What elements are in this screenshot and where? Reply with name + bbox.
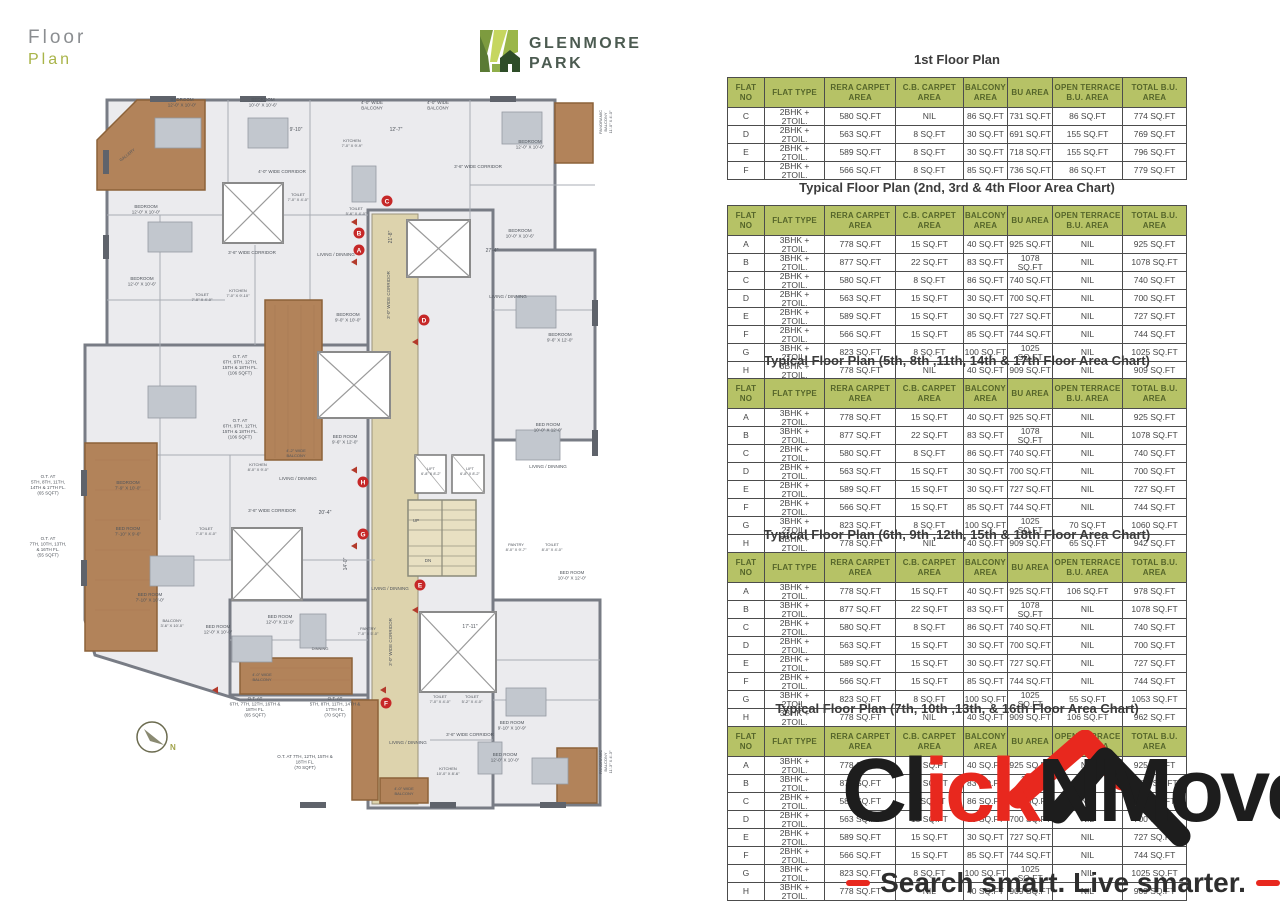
table-cell: 8 SQ.FT	[896, 126, 963, 144]
glenmore-park-logo-icon	[478, 28, 520, 79]
table-cell: B	[728, 427, 765, 445]
table-cell: 2BHK + 2TOIL.	[764, 144, 824, 162]
table-cell: E	[728, 308, 765, 326]
table-cell: 2BHK + 2TOIL.	[764, 463, 824, 481]
table-header-cell: BU AREA	[1008, 206, 1053, 236]
table-cell: NIL	[1053, 463, 1123, 481]
floor-table-section: Typical Floor Plan (2nd, 3rd & 4th Floor…	[727, 178, 1187, 380]
plan-label: BED ROOM10'-0" X 12'-0"	[558, 570, 587, 581]
plan-label: 3'-6" WIDE CORRIDOR	[228, 250, 276, 255]
table-cell: C	[728, 108, 765, 126]
table-cell: 30 SQ.FT	[963, 290, 1008, 308]
table-cell: 563 SQ.FT	[825, 290, 896, 308]
plan-label: KITCHEN8'-0" X 9'-0"	[248, 462, 269, 472]
table-cell: NIL	[1053, 326, 1123, 344]
table-cell: 30 SQ.FT	[963, 463, 1008, 481]
table-cell: 877 SQ.FT	[825, 427, 896, 445]
table-cell: A	[728, 757, 765, 775]
table-cell: F	[728, 326, 765, 344]
plan-label: LIVING / DINNING	[489, 294, 527, 299]
table-cell: 8 SQ.FT	[896, 272, 963, 290]
table-cell: 22 SQ.FT	[896, 427, 963, 445]
table-cell: NIL	[1053, 308, 1123, 326]
table-cell: 30 SQ.FT	[963, 126, 1008, 144]
plan-label: UP	[413, 518, 419, 523]
table-cell: F	[728, 499, 765, 517]
table-cell: C	[728, 793, 765, 811]
table-row: E2BHK + 2TOIL.589 SQ.FT15 SQ.FT30 SQ.FT7…	[728, 308, 1187, 326]
table-header-cell: FLAT TYPE	[764, 553, 824, 583]
table-cell: 83 SQ.FT	[963, 427, 1008, 445]
table-cell: 740 SQ.FT	[1123, 619, 1187, 637]
table-cell: 563 SQ.FT	[825, 637, 896, 655]
table-cell: 2BHK + 2TOIL.	[764, 290, 824, 308]
table-cell: 86 SQ.FT	[963, 108, 1008, 126]
table-cell: 700 SQ.FT	[1008, 463, 1053, 481]
table-cell: 700 SQ.FT	[1008, 290, 1053, 308]
table-cell: 744 SQ.FT	[1008, 673, 1053, 691]
table-cell: 3BHK + 2TOIL.	[764, 427, 824, 445]
table-row: F2BHK + 2TOIL.566 SQ.FT15 SQ.FT85 SQ.FT7…	[728, 673, 1187, 691]
table-header-cell: C.B. CARPET AREA	[896, 553, 963, 583]
table-cell: 580 SQ.FT	[825, 108, 896, 126]
table-cell: C	[728, 445, 765, 463]
table-cell: 580 SQ.FT	[825, 445, 896, 463]
table-cell: 744 SQ.FT	[1123, 499, 1187, 517]
plan-label: BEDROOM12'-0" X 10'-0"	[168, 97, 197, 108]
table-row: D2BHK + 2TOIL.563 SQ.FT15 SQ.FT30 SQ.FT7…	[728, 637, 1187, 655]
table-cell: 8 SQ.FT	[896, 162, 963, 180]
table-title: 1st Floor Plan	[727, 50, 1187, 70]
plan-label: BED ROOM9'-10" X 10'-9"	[498, 720, 527, 731]
plan-label: BEDROOM12'-0" X 10'-6"	[128, 276, 157, 287]
table-cell: 925 SQ.FT	[1123, 409, 1187, 427]
table-row: D2BHK + 2TOIL.563 SQ.FT15 SQ.FT30 SQ.FT7…	[728, 290, 1187, 308]
flat-marker-letter: A	[357, 247, 362, 254]
clicknmove-watermark: ClickNMove Search smart. Live smarter.	[846, 730, 1280, 903]
table-cell: 106 SQ.FT	[1053, 583, 1123, 601]
table-cell: 30 SQ.FT	[963, 655, 1008, 673]
table-header-cell: BU AREA	[1008, 379, 1053, 409]
table-header-cell: FLAT TYPE	[764, 727, 824, 757]
table-cell: 566 SQ.FT	[825, 326, 896, 344]
table-cell: 85 SQ.FT	[963, 162, 1008, 180]
table-cell: F	[728, 162, 765, 180]
table-cell: 15 SQ.FT	[896, 463, 963, 481]
table-cell: 978 SQ.FT	[1123, 583, 1187, 601]
table-cell: A	[728, 583, 765, 601]
plan-label: DN	[425, 558, 432, 563]
table-cell: 86 SQ.FT	[963, 272, 1008, 290]
plan-label: 4'-0" WIDEBALCONY	[361, 100, 383, 111]
table-cell: 30 SQ.FT	[963, 637, 1008, 655]
table-header-cell: RERA CARPET AREA	[825, 553, 896, 583]
plan-label: TOILET8'-0" X 4'-0"	[542, 542, 563, 552]
table-cell: D	[728, 811, 765, 829]
table-cell: 2BHK + 2TOIL.	[764, 619, 824, 637]
table-header-cell: FLAT TYPE	[764, 206, 824, 236]
table-cell: 744 SQ.FT	[1008, 499, 1053, 517]
table-cell: 2BHK + 2TOIL.	[764, 481, 824, 499]
plan-label: BEDROOM9'-0" X 10'-0"	[335, 312, 361, 323]
table-cell: G	[728, 865, 765, 883]
plan-label: 21'-8"	[388, 230, 394, 243]
table-cell: 740 SQ.FT	[1008, 445, 1053, 463]
table-cell: C	[728, 272, 765, 290]
table-cell: E	[728, 481, 765, 499]
table-cell: 727 SQ.FT	[1123, 481, 1187, 499]
plan-label: BED ROOM10'-0" X 12'-0"	[534, 422, 563, 433]
table-cell: 1078 SQ.FT	[1008, 601, 1053, 619]
table-cell: F	[728, 673, 765, 691]
table-row: C2BHK + 2TOIL.580 SQ.FT8 SQ.FT86 SQ.FT74…	[728, 272, 1187, 290]
flat-marker-letter: D	[422, 317, 427, 324]
brand-name-line2: PARK	[529, 54, 641, 73]
table-row: E2BHK + 2TOIL.589 SQ.FT8 SQ.FT30 SQ.FT71…	[728, 144, 1187, 162]
table-cell: 2BHK + 2TOIL.	[764, 499, 824, 517]
table-cell: 1078 SQ.FT	[1123, 427, 1187, 445]
table-cell: 877 SQ.FT	[825, 254, 896, 272]
table-cell: D	[728, 126, 765, 144]
table-cell: 2BHK + 2TOIL.	[764, 326, 824, 344]
table-cell: 727 SQ.FT	[1123, 655, 1187, 673]
table-cell: 85 SQ.FT	[963, 673, 1008, 691]
table-cell: NIL	[896, 108, 963, 126]
plan-label: KITCHEN7'-0" X 9'-9"	[342, 138, 363, 148]
table-header-cell: OPEN TERRACE B.U. AREA	[1053, 553, 1123, 583]
table-cell: 3BHK + 2TOIL.	[764, 601, 824, 619]
table-header-cell: TOTAL B.U. AREA	[1123, 78, 1187, 108]
table-cell: 925 SQ.FT	[1008, 409, 1053, 427]
plan-label: BEDROOM12'-0" X 10'-0"	[516, 139, 545, 150]
table-cell: 15 SQ.FT	[896, 655, 963, 673]
table-header-cell: TOTAL B.U. AREA	[1123, 553, 1187, 583]
floor-table-section: Typical Floor Plan (6th, 9th ,12th, 15th…	[727, 525, 1187, 727]
table-cell: B	[728, 254, 765, 272]
table-cell: 740 SQ.FT	[1123, 445, 1187, 463]
table-cell: 8 SQ.FT	[896, 144, 963, 162]
table-cell: 589 SQ.FT	[825, 481, 896, 499]
plan-label: BEDROOM9'-6" X 12'-0"	[547, 332, 573, 343]
plan-block-right-wing	[490, 250, 595, 440]
floor-table-section: Typical Floor Plan (5th, 8th ,11th, 14th…	[727, 351, 1187, 553]
plan-label: BALCONY3'-6" X 10'-0"	[160, 618, 184, 628]
table-cell: 566 SQ.FT	[825, 673, 896, 691]
plan-label: LIVING / DINNING	[529, 464, 567, 469]
table-header-cell: TOTAL B.U. AREA	[1123, 379, 1187, 409]
table-cell: 580 SQ.FT	[825, 272, 896, 290]
table-cell: NIL	[1053, 427, 1123, 445]
terrace-left	[85, 443, 157, 651]
brand-name: GLENMORE PARK	[529, 34, 641, 72]
table-cell: 15 SQ.FT	[896, 637, 963, 655]
stairs	[408, 500, 476, 576]
flat-marker-letter: F	[384, 700, 388, 707]
tagline-dash-left	[846, 880, 870, 886]
brand-name-line1: GLENMORE	[529, 34, 641, 53]
page-title-line1: Floor	[28, 26, 86, 50]
table-cell: 15 SQ.FT	[896, 409, 963, 427]
plan-label: 27'-4"	[486, 248, 499, 254]
plan-label: PANORAMICBALCONY11'-3" X 4'-3"	[598, 750, 613, 774]
table-cell: 15 SQ.FT	[896, 481, 963, 499]
table-cell: 15 SQ.FT	[896, 236, 963, 254]
plan-label: BED ROOM12'-0" X 10'-0"	[491, 752, 520, 763]
table-cell: 1078 SQ.FT	[1123, 601, 1187, 619]
table-cell: C	[728, 619, 765, 637]
table-header-cell: BALCONY AREA	[963, 78, 1008, 108]
plan-label: O.T. AT 7TH, 12TH, 15TH &18TH FL.(70 SQF…	[277, 754, 333, 770]
table-cell: NIL	[1053, 655, 1123, 673]
plan-label: KITCHEN7'-0" X 9'-10"	[226, 288, 250, 298]
table-cell: 700 SQ.FT	[1123, 463, 1187, 481]
table-cell: E	[728, 829, 765, 847]
plan-label: 12'-7"	[390, 127, 403, 133]
plan-label: 17'-11"	[462, 624, 477, 630]
table-cell: 1078 SQ.FT	[1008, 427, 1053, 445]
table-cell: 563 SQ.FT	[825, 126, 896, 144]
table-cell: 15 SQ.FT	[896, 673, 963, 691]
table-cell: 40 SQ.FT	[963, 583, 1008, 601]
area-table: FLAT NOFLAT TYPERERA CARPET AREAC.B. CAR…	[727, 77, 1187, 180]
table-row: F2BHK + 2TOIL.566 SQ.FT8 SQ.FT85 SQ.FT73…	[728, 162, 1187, 180]
plan-label: LIVING / DINNING	[317, 252, 355, 257]
tagline-text: Search smart. Live smarter.	[880, 867, 1246, 899]
table-cell: 2BHK + 2TOIL.	[764, 811, 824, 829]
plan-label: 3'-6" WIDE CORRIDOR	[248, 508, 296, 513]
plan-label: LIVING / DINNING	[389, 740, 427, 745]
table-cell: 2BHK + 2TOIL.	[764, 793, 824, 811]
table-header-cell: RERA CARPET AREA	[825, 206, 896, 236]
table-cell: 3BHK + 2TOIL.	[764, 236, 824, 254]
table-cell: 22 SQ.FT	[896, 601, 963, 619]
table-cell: 2BHK + 2TOIL.	[764, 126, 824, 144]
table-cell: 727 SQ.FT	[1008, 481, 1053, 499]
table-cell: 2BHK + 2TOIL.	[764, 308, 824, 326]
plan-label: BED ROOM7'-10" X 9'-6"	[115, 526, 141, 537]
table-cell: 2BHK + 2TOIL.	[764, 829, 824, 847]
plan-label: BED ROOM9'-6" X 12'-0"	[332, 434, 358, 445]
plan-label: 4'-0" WIDEBALCONY	[394, 786, 414, 796]
plan-label: 20'-4"	[319, 510, 332, 516]
table-cell: 86 SQ.FT	[1053, 108, 1123, 126]
plan-label: 3'-0" WIDE CORRIDOR	[386, 270, 391, 318]
table-cell: 740 SQ.FT	[1123, 272, 1187, 290]
table-cell: NIL	[1053, 409, 1123, 427]
plan-label: BEDROOM10'-0" X 10'-6"	[506, 228, 535, 239]
table-row: E2BHK + 2TOIL.589 SQ.FT15 SQ.FT30 SQ.FT7…	[728, 655, 1187, 673]
plan-label: LIVING / DINNING	[279, 476, 317, 481]
table-cell: 3BHK + 2TOIL.	[764, 775, 824, 793]
plan-label: BEDROOM10'-0" X 10'-6"	[249, 97, 278, 108]
table-cell: 8 SQ.FT	[896, 619, 963, 637]
plan-label: O.T. AT5TH, 8TH, 11TH,14TH & 17TH FL.(65…	[30, 474, 65, 496]
table-cell: 796 SQ.FT	[1123, 144, 1187, 162]
table-cell: E	[728, 655, 765, 673]
plan-label: 4'-0" WIDEBALCONY	[427, 100, 449, 111]
table-header-cell: OPEN TERRACE B.U. AREA	[1053, 78, 1123, 108]
plan-label: PANTRY8'-0" X 9'-7"	[506, 542, 527, 552]
table-cell: 736 SQ.FT	[1008, 162, 1053, 180]
table-cell: 731 SQ.FT	[1008, 108, 1053, 126]
table-header-cell: FLAT TYPE	[764, 379, 824, 409]
table-cell: 30 SQ.FT	[963, 144, 1008, 162]
table-header-cell: BALCONY AREA	[963, 206, 1008, 236]
table-cell: 3BHK + 2TOIL.	[764, 883, 824, 901]
table-cell: 718 SQ.FT	[1008, 144, 1053, 162]
compass-icon: N	[137, 722, 176, 752]
terrace-bottom-strip	[352, 700, 378, 800]
table-cell: 589 SQ.FT	[825, 655, 896, 673]
table-cell: 30 SQ.FT	[963, 308, 1008, 326]
table-cell: 740 SQ.FT	[1008, 619, 1053, 637]
table-row: D2BHK + 2TOIL.563 SQ.FT8 SQ.FT30 SQ.FT69…	[728, 126, 1187, 144]
table-cell: 727 SQ.FT	[1008, 308, 1053, 326]
table-cell: 3BHK + 2TOIL.	[764, 254, 824, 272]
flat-marker-letter: C	[385, 198, 390, 205]
table-cell: NIL	[1053, 481, 1123, 499]
table-header-cell: RERA CARPET AREA	[825, 379, 896, 409]
table-cell: 925 SQ.FT	[1008, 236, 1053, 254]
tagline-dash-right	[1256, 880, 1280, 886]
plan-label: 4'-0" WIDE CORRIDOR	[258, 169, 306, 174]
table-cell: 155 SQ.FT	[1053, 126, 1123, 144]
table-cell: 22 SQ.FT	[896, 254, 963, 272]
table-title: Typical Floor Plan (2nd, 3rd & 4th Floor…	[727, 178, 1187, 198]
table-title: Typical Floor Plan (7th, 10th ,13th, & 1…	[727, 699, 1187, 719]
table-cell: NIL	[1053, 254, 1123, 272]
table-cell: 15 SQ.FT	[896, 326, 963, 344]
flat-marker-letter: H	[361, 479, 366, 486]
table-cell: A	[728, 409, 765, 427]
table-row: A3BHK + 2TOIL.778 SQ.FT15 SQ.FT40 SQ.FT9…	[728, 236, 1187, 254]
plan-label: PANTRY7'-0" X 5'-0"	[358, 626, 379, 636]
table-cell: 2BHK + 2TOIL.	[764, 637, 824, 655]
table-header-cell: FLAT NO	[728, 379, 765, 409]
table-row: B3BHK + 2TOIL.877 SQ.FT22 SQ.FT83 SQ.FT1…	[728, 254, 1187, 272]
table-cell: 2BHK + 2TOIL.	[764, 108, 824, 126]
table-row: C2BHK + 2TOIL.580 SQ.FT8 SQ.FT86 SQ.FT74…	[728, 619, 1187, 637]
table-cell: 744 SQ.FT	[1123, 673, 1187, 691]
table-cell: 563 SQ.FT	[825, 463, 896, 481]
table-row: E2BHK + 2TOIL.589 SQ.FT15 SQ.FT30 SQ.FT7…	[728, 481, 1187, 499]
table-cell: 2BHK + 2TOIL.	[764, 272, 824, 290]
table-cell: 2BHK + 2TOIL.	[764, 162, 824, 180]
wordmark-black-2: NMove	[1037, 741, 1280, 841]
table-header-cell: FLAT TYPE	[764, 78, 824, 108]
table-cell: NIL	[1053, 619, 1123, 637]
table-row: B3BHK + 2TOIL.877 SQ.FT22 SQ.FT83 SQ.FT1…	[728, 601, 1187, 619]
table-cell: 3BHK + 2TOIL.	[764, 865, 824, 883]
table-cell: 691 SQ.FT	[1008, 126, 1053, 144]
table-cell: 15 SQ.FT	[896, 583, 963, 601]
table-cell: 727 SQ.FT	[1123, 308, 1187, 326]
plan-label: 4'-0" WIDEBALCONY	[252, 672, 272, 682]
table-header-cell: BALCONY AREA	[963, 553, 1008, 583]
table-cell: 566 SQ.FT	[825, 162, 896, 180]
plan-label: O.T. AT7TH, 10TH, 13TH,& 16TH FL.(55 SQF…	[30, 536, 67, 558]
table-row: B3BHK + 2TOIL.877 SQ.FT22 SQ.FT83 SQ.FT1…	[728, 427, 1187, 445]
compass-north-label: N	[170, 743, 176, 752]
plan-label: LIVING / DINNING	[371, 586, 409, 591]
plan-label: BED ROOM12'-0" X 10'-0"	[204, 624, 233, 635]
table-cell: B	[728, 601, 765, 619]
table-cell: 30 SQ.FT	[963, 481, 1008, 499]
table-title: Typical Floor Plan (5th, 8th ,11th, 14th…	[727, 351, 1187, 371]
table-cell: 700 SQ.FT	[1123, 637, 1187, 655]
table-cell: 1078 SQ.FT	[1008, 254, 1053, 272]
plan-label: BED ROOM7'-10" X 10'-0"	[136, 592, 165, 603]
table-cell: 86 SQ.FT	[963, 445, 1008, 463]
table-cell: A	[728, 236, 765, 254]
table-row: F2BHK + 2TOIL.566 SQ.FT15 SQ.FT85 SQ.FT7…	[728, 326, 1187, 344]
table-cell: 744 SQ.FT	[1123, 326, 1187, 344]
page-title: Floor Plan	[28, 26, 86, 70]
table-cell: D	[728, 463, 765, 481]
table-cell: 155 SQ.FT	[1053, 144, 1123, 162]
table-cell: 774 SQ.FT	[1123, 108, 1187, 126]
table-cell: 589 SQ.FT	[825, 308, 896, 326]
brand-logo: GLENMORE PARK	[478, 28, 641, 79]
table-cell: 15 SQ.FT	[896, 499, 963, 517]
table-cell: 700 SQ.FT	[1008, 637, 1053, 655]
table-cell: NIL	[1053, 236, 1123, 254]
table-title: Typical Floor Plan (6th, 9th ,12th, 15th…	[727, 525, 1187, 545]
table-cell: 8 SQ.FT	[896, 445, 963, 463]
plan-label: PANORAMICBALCONY11'-0" X 4'-0"	[598, 110, 613, 134]
table-cell: 744 SQ.FT	[1008, 326, 1053, 344]
flat-marker-letter: E	[418, 582, 423, 589]
table-cell: 1078 SQ.FT	[1123, 254, 1187, 272]
table-cell: 85 SQ.FT	[963, 499, 1008, 517]
table-cell: 769 SQ.FT	[1123, 126, 1187, 144]
floor-table-section: 1st Floor PlanFLAT NOFLAT TYPERERA CARPE…	[727, 50, 1187, 180]
table-cell: 3BHK + 2TOIL.	[764, 583, 824, 601]
table-cell: 589 SQ.FT	[825, 144, 896, 162]
table-cell: 15 SQ.FT	[896, 290, 963, 308]
table-header-cell: BALCONY AREA	[963, 379, 1008, 409]
table-cell: 877 SQ.FT	[825, 601, 896, 619]
table-cell: 779 SQ.FT	[1123, 162, 1187, 180]
table-row: D2BHK + 2TOIL.563 SQ.FT15 SQ.FT30 SQ.FT7…	[728, 463, 1187, 481]
table-cell: NIL	[1053, 601, 1123, 619]
table-cell: NIL	[1053, 499, 1123, 517]
table-cell: 83 SQ.FT	[963, 254, 1008, 272]
table-cell: D	[728, 637, 765, 655]
table-row: C2BHK + 2TOIL.580 SQ.FTNIL86 SQ.FT731 SQ…	[728, 108, 1187, 126]
table-header-cell: OPEN TERRACE B.U. AREA	[1053, 379, 1123, 409]
flat-marker-letter: G	[360, 531, 365, 538]
table-header-cell: BU AREA	[1008, 553, 1053, 583]
table-header-cell: FLAT NO	[728, 78, 765, 108]
table-header-cell: C.B. CARPET AREA	[896, 206, 963, 236]
table-cell: 580 SQ.FT	[825, 619, 896, 637]
table-cell: 15 SQ.FT	[896, 308, 963, 326]
table-cell: 40 SQ.FT	[963, 236, 1008, 254]
table-header-cell: FLAT NO	[728, 727, 765, 757]
plan-label: BEDROOM7'-9" X 10'-0"	[115, 480, 141, 491]
table-row: C2BHK + 2TOIL.580 SQ.FT8 SQ.FT86 SQ.FT74…	[728, 445, 1187, 463]
plan-label: 3'-6" WIDE CORRIDOR	[454, 164, 502, 169]
table-cell: 2BHK + 2TOIL.	[764, 673, 824, 691]
plan-label: 4'-2" WIDEBALCONY	[286, 448, 306, 458]
table-header-cell: RERA CARPET AREA	[825, 78, 896, 108]
table-row: A3BHK + 2TOIL.778 SQ.FT15 SQ.FT40 SQ.FT9…	[728, 583, 1187, 601]
table-cell: 925 SQ.FT	[1123, 236, 1187, 254]
terrace-panoramic-top	[555, 103, 593, 163]
table-header-cell: TOTAL B.U. AREA	[1123, 206, 1187, 236]
table-cell: NIL	[1053, 290, 1123, 308]
